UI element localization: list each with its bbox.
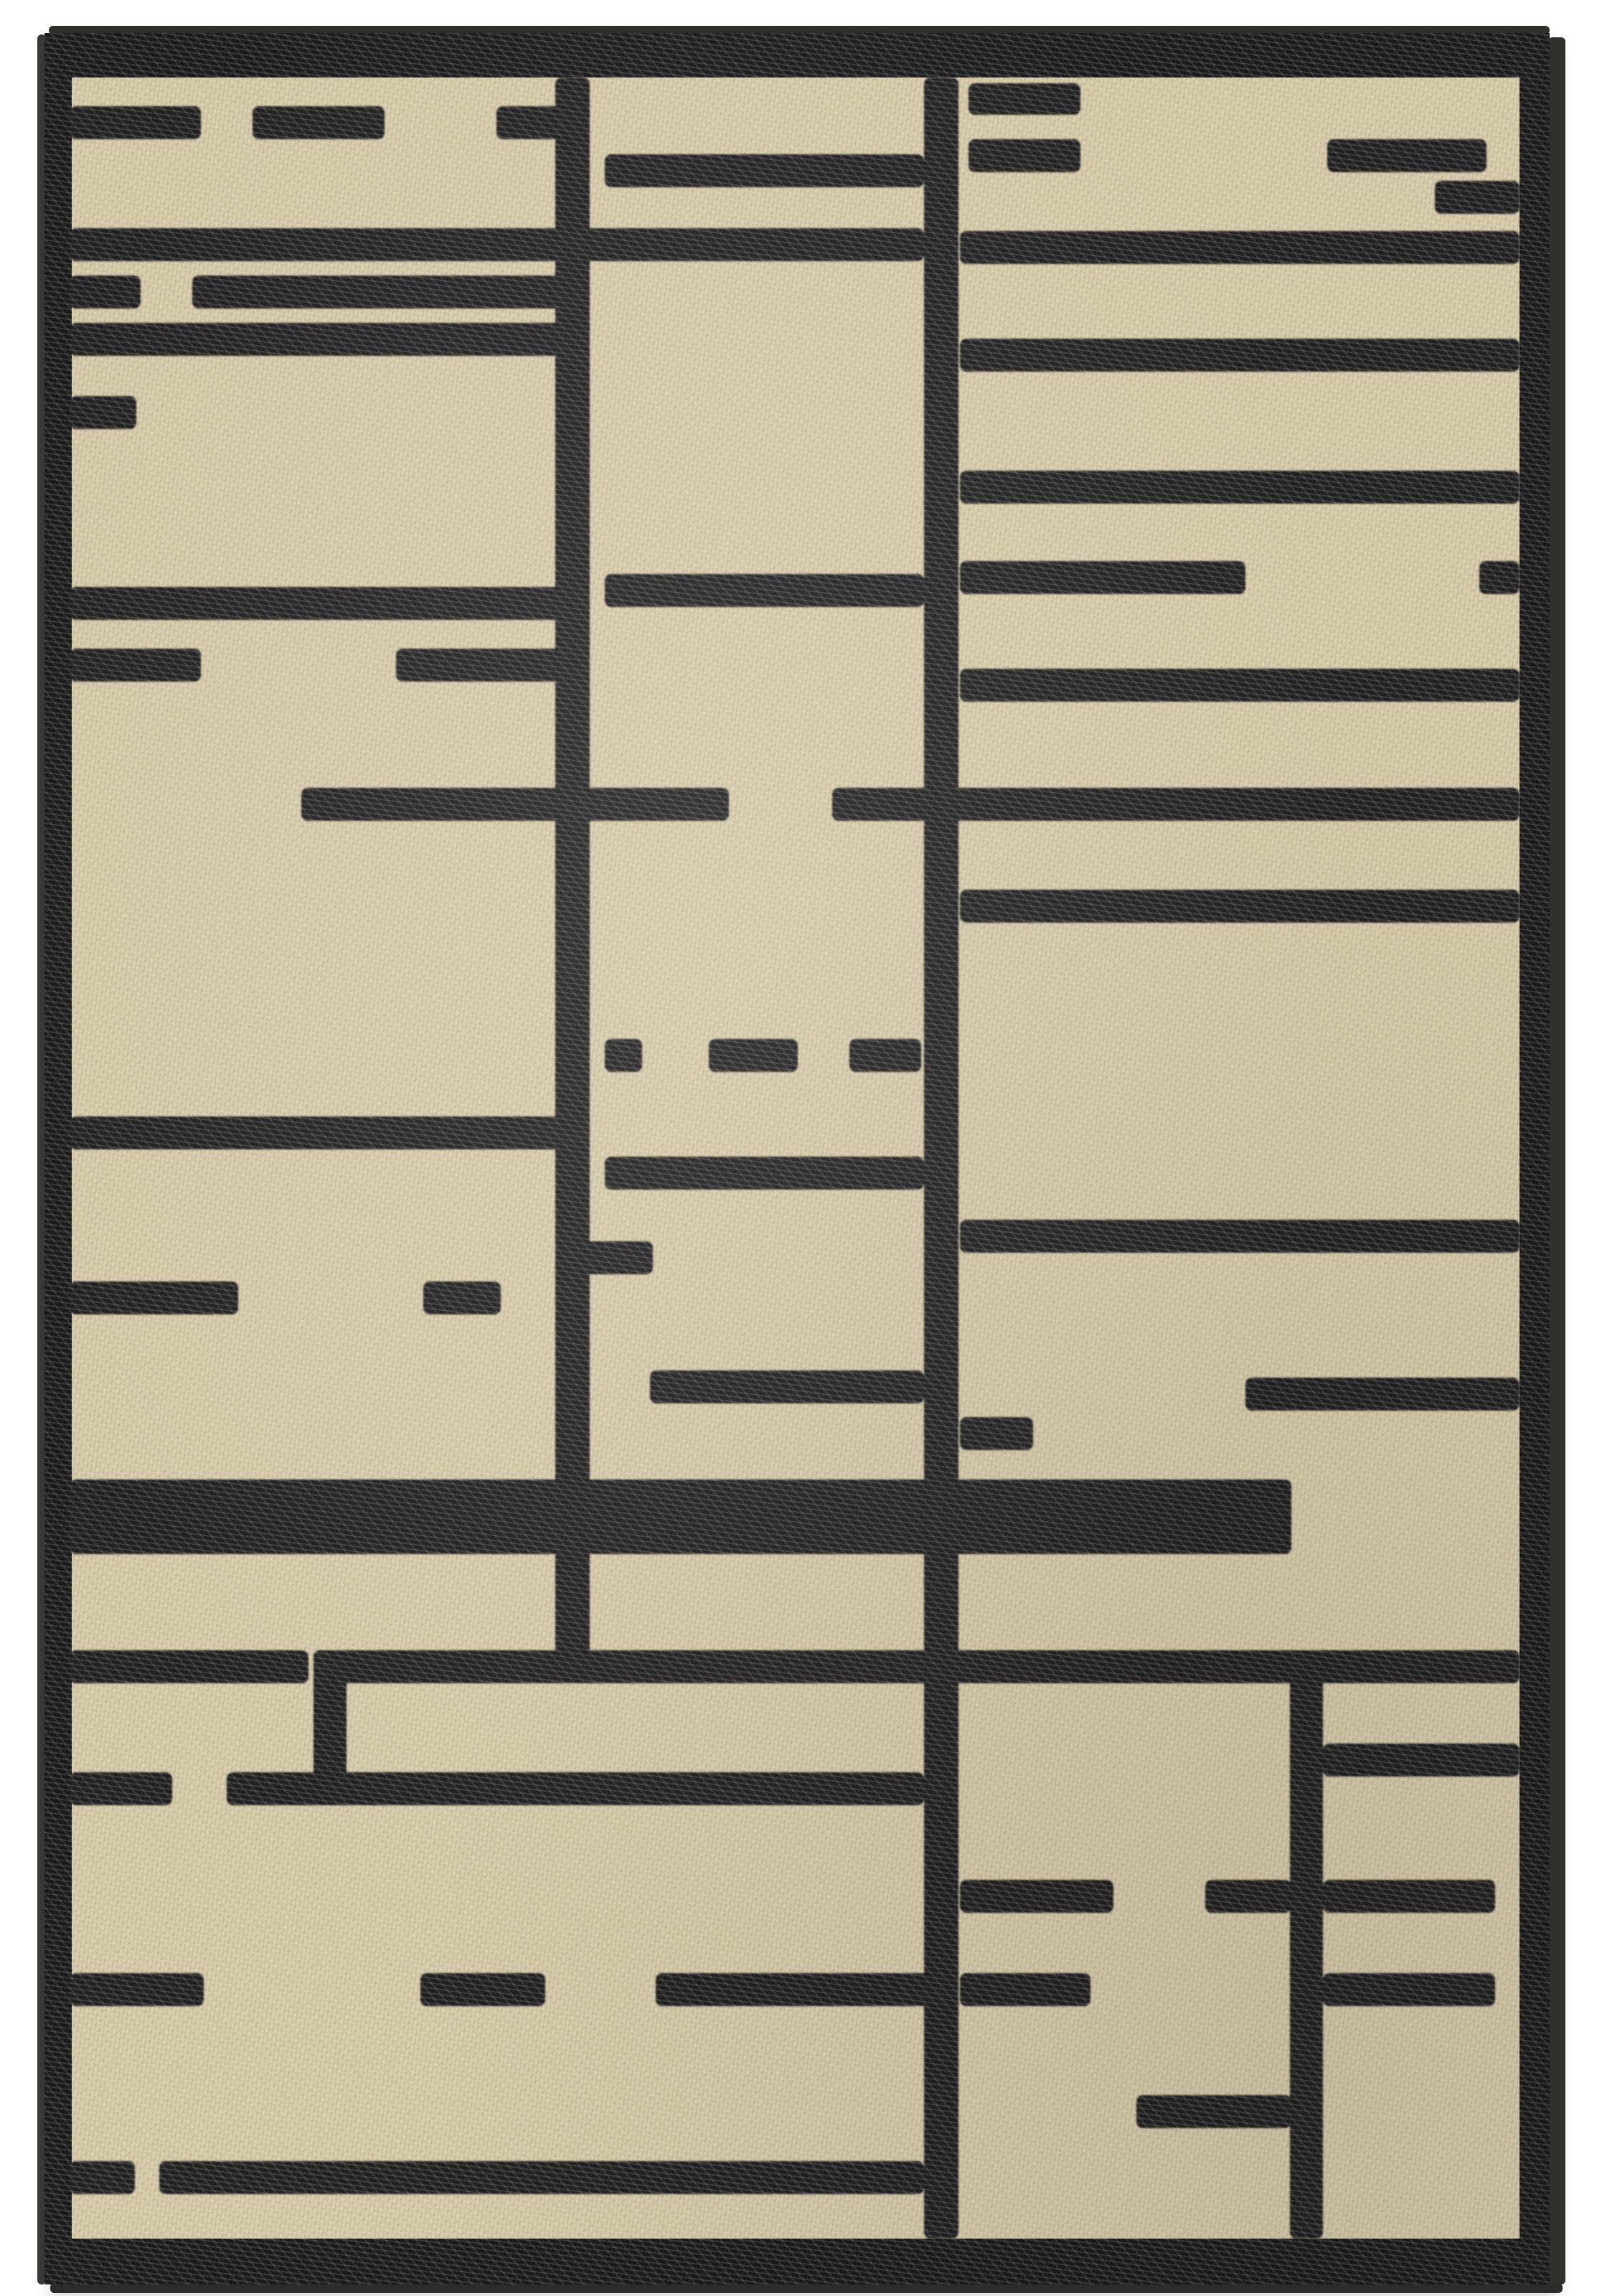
pattern-horizontal-bar	[70, 276, 141, 309]
pattern-horizontal-bar	[605, 574, 924, 607]
pattern-horizontal-bar	[70, 1479, 1291, 1554]
pattern-horizontal-bar	[70, 1116, 590, 1149]
pattern-horizontal-bar	[605, 154, 924, 187]
pattern-horizontal-bar	[314, 1650, 1519, 1683]
pattern-horizontal-bar	[1136, 2095, 1291, 2128]
pattern-vertical-line	[924, 77, 958, 2239]
pattern-horizontal-bar	[832, 788, 1519, 821]
pattern-horizontal-bar	[960, 339, 1519, 372]
pattern-horizontal-bar	[70, 1281, 238, 1314]
pattern-horizontal-bar	[570, 1241, 653, 1274]
pattern-horizontal-bar	[192, 276, 590, 309]
pattern-horizontal-bar	[656, 1973, 933, 2006]
pattern-horizontal-bar	[969, 83, 1080, 115]
pattern-horizontal-bar	[423, 1281, 501, 1314]
pattern-horizontal-bar	[301, 788, 729, 821]
pattern-horizontal-bar	[70, 106, 201, 139]
pattern-horizontal-bar	[496, 106, 590, 139]
pattern-horizontal-bar	[70, 1973, 204, 2006]
pattern-horizontal-bar	[70, 1650, 308, 1683]
pattern-horizontal-bar	[70, 587, 590, 620]
pattern-horizontal-bar	[1327, 139, 1486, 172]
pattern-horizontal-bar	[1323, 1880, 1495, 1913]
pattern-horizontal-bar	[70, 396, 136, 429]
pattern-horizontal-bar	[960, 1973, 1090, 2006]
pattern-horizontal-bar	[70, 1772, 172, 1805]
pattern-horizontal-bar	[1323, 1744, 1519, 1777]
pattern-horizontal-bar	[70, 649, 201, 682]
pattern-horizontal-bar	[960, 561, 1245, 594]
pattern-horizontal-bar	[650, 1370, 924, 1403]
pattern-horizontal-bar	[605, 1157, 924, 1190]
pattern-horizontal-bar	[960, 1220, 1519, 1253]
photo-background	[0, 0, 1602, 2296]
pattern-horizontal-bar	[1205, 1880, 1291, 1913]
pattern-horizontal-bar	[1245, 1378, 1519, 1411]
pattern-horizontal-bar	[396, 649, 571, 682]
rug	[0, 0, 1602, 2296]
pattern-vertical-line	[1290, 1650, 1323, 2239]
pattern-horizontal-bar	[960, 890, 1519, 923]
pattern-horizontal-bar	[227, 1772, 924, 1805]
pattern-horizontal-bar	[960, 471, 1519, 504]
pattern-horizontal-bar	[159, 2161, 924, 2194]
pattern-horizontal-bar	[960, 1880, 1113, 1913]
pattern-horizontal-bar	[969, 139, 1080, 172]
pattern-horizontal-bar	[709, 1039, 798, 1072]
pattern-horizontal-bar	[70, 228, 924, 261]
pattern-horizontal-bar	[1479, 561, 1519, 594]
pattern-horizontal-bar	[605, 1039, 642, 1072]
pattern-horizontal-bar	[1435, 181, 1519, 214]
pattern-horizontal-bar	[70, 323, 590, 356]
pattern-horizontal-bar	[960, 669, 1519, 702]
pattern-horizontal-bar	[960, 1417, 1033, 1450]
pattern-horizontal-bar	[253, 106, 385, 139]
pattern-horizontal-bar	[420, 1973, 545, 2006]
pattern-horizontal-bar	[849, 1039, 921, 1072]
pattern-horizontal-bar	[1323, 1973, 1495, 2006]
pattern-horizontal-bar	[960, 231, 1519, 264]
pattern-vertical-line	[555, 77, 590, 1683]
pattern-layer	[0, 0, 1602, 2296]
pattern-horizontal-bar	[70, 2161, 135, 2194]
